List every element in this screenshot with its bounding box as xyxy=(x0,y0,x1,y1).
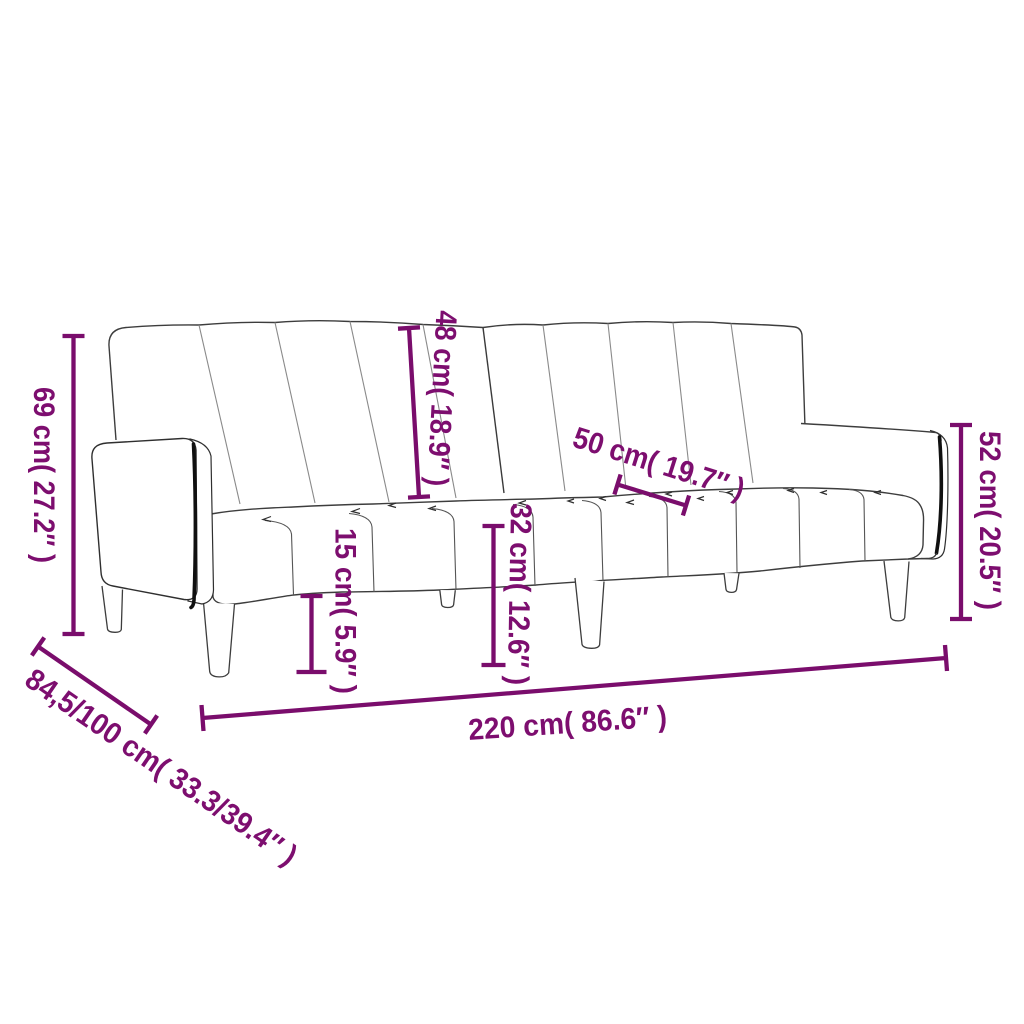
svg-text:15 cm( 5.9″ ): 15 cm( 5.9″ ) xyxy=(329,528,362,694)
svg-text:52 cm( 20.5″ ): 52 cm( 20.5″ ) xyxy=(973,431,1006,610)
svg-text:32 cm( 12.6″ ): 32 cm( 12.6″ ) xyxy=(501,503,537,686)
svg-text:69 cm( 27.2″ ): 69 cm( 27.2″ ) xyxy=(27,387,60,563)
